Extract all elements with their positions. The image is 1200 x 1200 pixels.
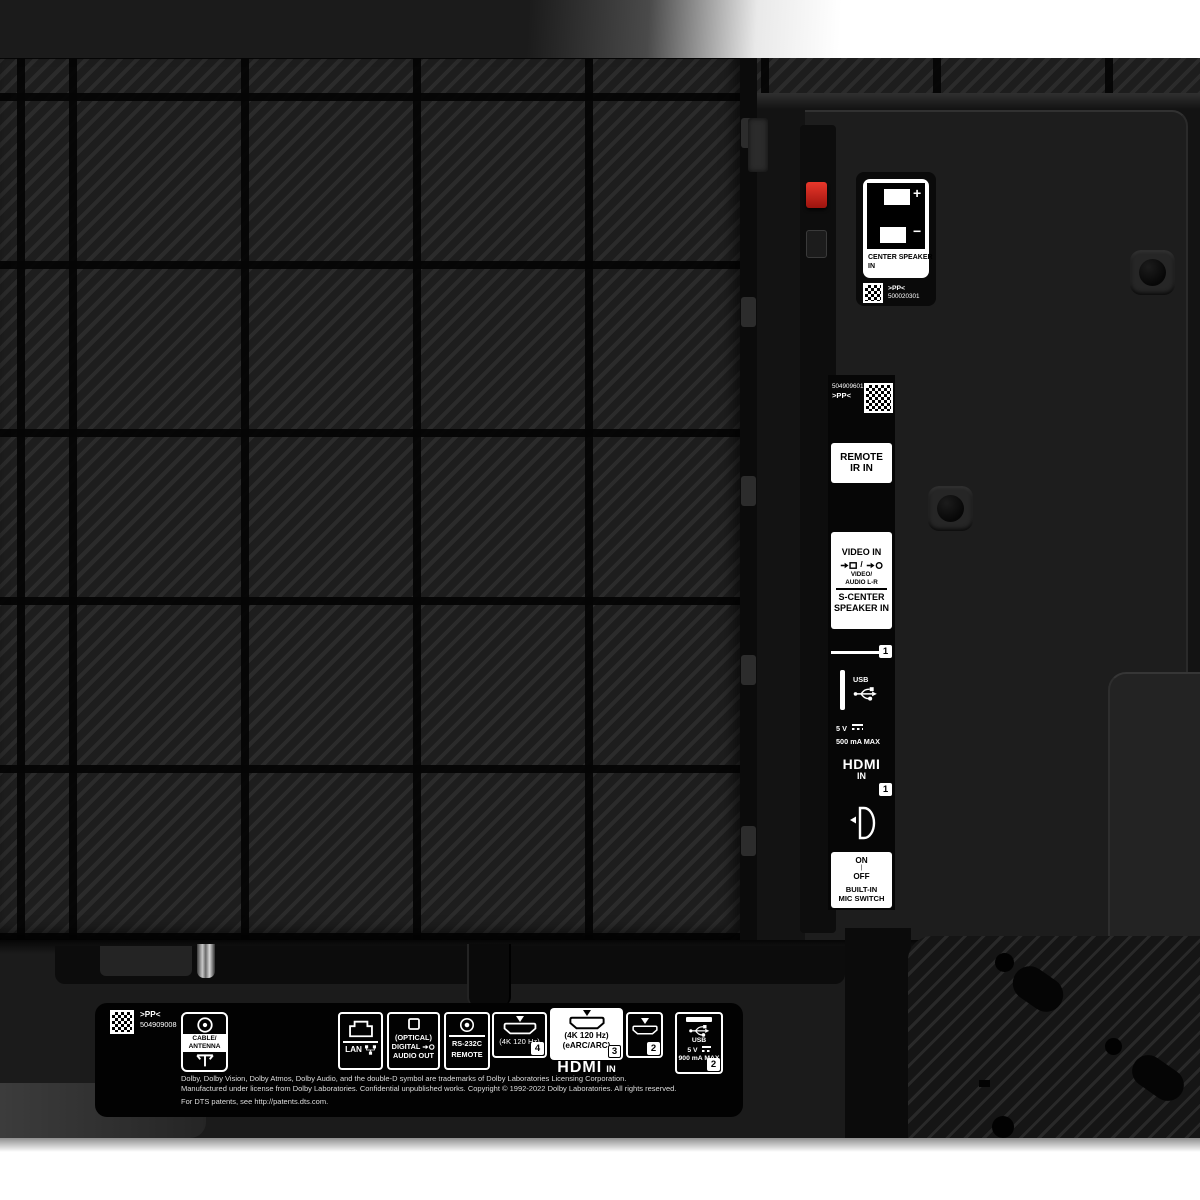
seam-tab	[741, 476, 756, 506]
cable-antenna-box: CABLE/ ANTENNA	[181, 1012, 228, 1072]
usb-voltage: 5 V	[836, 724, 847, 733]
optical-box: (OPTICAL) DIGITAL AUDIO OUT	[387, 1012, 440, 1070]
usb-voltage-row: 5 V	[836, 724, 863, 733]
keyhole-slot	[1126, 1049, 1190, 1107]
side-serial-row: 504909601 >PP<	[830, 383, 893, 413]
hdmi-in-word: IN	[828, 771, 895, 782]
optical-port-icon	[407, 1017, 421, 1031]
photo-background	[0, 1138, 1200, 1200]
keyhole-slot	[1006, 960, 1070, 1019]
remote-ir-label: REMOTE IR IN	[831, 443, 892, 483]
top-bezel-edge	[0, 0, 1200, 58]
legal-line2: Manufactured under license from Dolby La…	[181, 1084, 686, 1094]
rs232c-box: RS-232C REMOTE	[444, 1012, 490, 1070]
divider	[343, 1041, 378, 1043]
plus-sign: +	[913, 185, 921, 201]
video-in-title: VIDEO IN	[842, 547, 882, 558]
code-number: 500020301	[888, 293, 920, 301]
icon-divider: /	[860, 560, 862, 570]
hdmi-connector-icon	[632, 1025, 658, 1035]
side-serial-mark: >PP<	[832, 391, 864, 400]
rs232c-port-icon	[459, 1017, 475, 1033]
remote-ir-line1: REMOTE	[840, 452, 883, 464]
hdmi-connector-icon	[568, 1016, 606, 1030]
tv-rear-panel-photo: + − CENTER SPEAKER IN >PP< 500020301 504…	[0, 0, 1200, 1200]
mount-slot	[748, 118, 768, 172]
dc-symbol-icon	[702, 1046, 711, 1055]
legal-text: Dolby, Dolby Vision, Dolby Atmos, Dolby …	[181, 1074, 686, 1107]
center-speaker-title-line1: CENTER SPEAKER	[868, 253, 933, 262]
cable-line2: ANTENNA	[183, 1043, 226, 1051]
usb-current: 500 mA MAX	[836, 737, 880, 746]
hdmi3-number: 3	[608, 1045, 621, 1058]
lan-label: LAN	[345, 1045, 362, 1055]
code-mark: >PP<	[888, 285, 920, 293]
network-icon	[365, 1045, 376, 1055]
hdmi-port-icon	[847, 804, 877, 842]
seam-tab	[741, 297, 756, 327]
usb-label: USB	[692, 1037, 706, 1045]
rs232c-sub: REMOTE	[451, 1050, 482, 1059]
audio-jack-icon	[866, 561, 883, 570]
minus-sign: −	[913, 223, 921, 239]
video-in-label: VIDEO IN / VIDEO/ AUDIO L-R S-CENTER SPE…	[831, 532, 892, 629]
mount-hole	[995, 953, 1014, 972]
terminal-window-plus	[884, 189, 910, 205]
usb-section-line	[831, 651, 880, 654]
remote-ir-line2: IR IN	[850, 463, 873, 475]
mount-mark	[979, 1080, 990, 1087]
divider	[449, 1035, 485, 1037]
bottom-code: >PP< 504909008	[140, 1010, 177, 1029]
qr-code	[110, 1010, 134, 1034]
usb-port-number: 1	[879, 645, 892, 658]
hdmi-connector-icon	[503, 1022, 537, 1035]
usb-port-bar	[840, 670, 845, 710]
hdmi3-spec2: (eARC/ARC)	[563, 1041, 611, 1051]
hdmi2-box: 2	[626, 1012, 663, 1058]
down-arrow-icon	[641, 1018, 649, 1024]
bay-step-panel	[1108, 672, 1200, 940]
ridge-seam	[845, 928, 911, 1138]
speaker-grille-panel	[0, 58, 740, 940]
video-sub2: AUDIO L-R	[845, 579, 878, 587]
optical-title: (OPTICAL)	[395, 1033, 432, 1042]
hdmi4-number: 4	[531, 1042, 544, 1055]
coax-connector-icon	[196, 1016, 214, 1034]
usb-voltage: 5 V	[687, 1047, 697, 1055]
speaker-clip-red	[806, 182, 827, 208]
usb-icon	[853, 686, 877, 701]
usb-number: 2	[707, 1058, 720, 1071]
screw-hole	[928, 486, 973, 531]
center-speaker-title: CENTER SPEAKER IN	[868, 253, 933, 271]
optical-line1: DIGITAL	[392, 1042, 421, 1051]
usb-label: USB	[853, 675, 868, 684]
divider	[836, 588, 886, 590]
center-speaker-label: + − CENTER SPEAKER IN >PP< 500020301	[856, 172, 936, 306]
bottom-label-strip: >PP< 504909008 CABLE/ ANTENNA LA	[95, 1003, 743, 1117]
hdmi4-box: (4K 120 Hz) 4	[492, 1012, 547, 1058]
optical-line2: AUDIO OUT	[393, 1051, 434, 1060]
qr-code	[863, 283, 883, 303]
usb-icon	[688, 1024, 710, 1037]
seam-tab	[741, 826, 756, 856]
s-center-line1: S-CENTER	[838, 592, 884, 603]
composite-jack-icon	[840, 561, 857, 570]
terminal-window-minus	[880, 227, 906, 243]
center-speaker-terminal-diagram: + − CENTER SPEAKER IN	[863, 179, 929, 278]
mic-line2: MIC SWITCH	[839, 894, 885, 903]
s-center-line2: SPEAKER IN	[834, 603, 889, 614]
side-serial-number: 504909601	[832, 383, 864, 391]
mic-line1: BUILT-IN	[846, 885, 878, 894]
antenna-icon	[194, 1053, 216, 1068]
hdmi-port-icon-area	[828, 799, 895, 847]
top-texture-strip	[757, 58, 1200, 93]
hdmi3-box: (4K 120 Hz) (eARC/ARC) 3	[550, 1008, 623, 1060]
cable-hook	[467, 944, 511, 1006]
lan-box: LAN	[338, 1012, 383, 1070]
legal-line1: Dolby, Dolby Vision, Dolby Atmos, Dolby …	[181, 1074, 686, 1084]
center-speaker-code: >PP< 500020301	[888, 285, 920, 301]
video-sub1: VIDEO/	[851, 571, 872, 579]
mount-hole	[992, 1116, 1014, 1138]
mount-hole	[1105, 1038, 1122, 1055]
usb-box: USB 5 V 900 mA MAX 2	[675, 1012, 723, 1074]
code-mark: >PP<	[140, 1010, 177, 1020]
hdmi-port-number: 1	[879, 783, 892, 796]
side-label-strip: 504909601 >PP< REMOTE IR IN VIDEO IN /	[828, 375, 895, 910]
legal-line3: For DTS patents, see http://patents.dts.…	[181, 1097, 686, 1107]
bay-top-highlight	[757, 93, 1200, 109]
cable-line1: CABLE/	[183, 1035, 226, 1043]
usb-label-group: USB	[853, 675, 877, 701]
ridged-mount-panel	[908, 936, 1200, 1138]
stand-pin	[197, 944, 215, 978]
terminal-window-area: + −	[867, 183, 925, 249]
rs232c-title: RS-232C	[452, 1039, 482, 1048]
center-speaker-title-line2: IN	[868, 262, 933, 271]
qr-code	[864, 383, 893, 413]
lan-port-icon	[347, 1018, 375, 1039]
hdmi-word: HDMI	[828, 756, 895, 772]
hdmi2-number: 2	[647, 1042, 660, 1055]
seam-tab	[741, 655, 756, 685]
mic-switch-label: ON | OFF BUILT-IN MIC SWITCH	[831, 852, 892, 908]
mic-off: OFF	[853, 872, 869, 882]
audio-out-jack-icon	[422, 1043, 435, 1051]
screw-hole	[1130, 250, 1175, 295]
speaker-clip-black	[806, 230, 827, 258]
hdmi3-spec1: (4K 120 Hz)	[564, 1031, 608, 1041]
dc-symbol-icon	[852, 724, 863, 733]
code-number: 504909008	[140, 1020, 177, 1029]
usb-port-bar	[686, 1017, 712, 1022]
channel-tab	[100, 946, 192, 976]
